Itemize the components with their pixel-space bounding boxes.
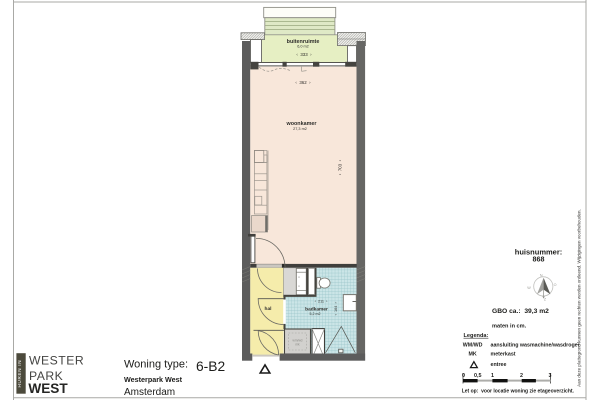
svg-text:Westerpark West: Westerpark West <box>124 375 183 384</box>
svg-text:‹ 362 ›: ‹ 362 › <box>295 80 311 85</box>
svg-text:‹ 164 ›: ‹ 164 › <box>334 302 338 316</box>
svg-text:6-B2: 6-B2 <box>196 359 225 374</box>
svg-text:HUREN IN: HUREN IN <box>17 360 22 388</box>
svg-text:MK: MK <box>469 352 477 358</box>
svg-text:mk: mk <box>295 343 300 347</box>
svg-text:GBO ca.: 39,3 m2: GBO ca.: 39,3 m2 <box>492 308 549 315</box>
svg-text:27,3 m2: 27,3 m2 <box>293 127 307 131</box>
svg-text:‹ 333 ›: ‹ 333 › <box>296 52 312 57</box>
svg-text:O: O <box>554 283 557 287</box>
svg-text:‹ 211 ›: ‹ 211 › <box>315 300 329 304</box>
svg-text:Legenda:: Legenda: <box>464 333 489 339</box>
svg-text:Woning type:: Woning type: <box>124 359 188 371</box>
svg-text:3: 3 <box>549 373 552 379</box>
svg-text:WESTER: WESTER <box>29 353 84 367</box>
svg-text:‹ 703 ›: ‹ 703 › <box>338 159 343 175</box>
svg-text:entree: entree <box>491 362 507 368</box>
svg-text:868: 868 <box>533 254 545 263</box>
svg-text:Amsterdam: Amsterdam <box>124 387 175 398</box>
svg-text:N: N <box>540 273 543 277</box>
svg-text:5,2 m2: 5,2 m2 <box>310 312 321 316</box>
svg-text:W: W <box>527 286 531 290</box>
svg-text:0: 0 <box>462 373 465 379</box>
svg-text:2: 2 <box>520 373 523 379</box>
svg-text:Let op: voor locatie woning z: Let op: voor locatie woning zie etageove… <box>462 389 575 395</box>
svg-text:meterkast: meterkast <box>491 352 516 358</box>
svg-text:maten in cm.: maten in cm. <box>492 324 527 330</box>
svg-text:0,5: 0,5 <box>474 373 482 379</box>
svg-text:aansluiting wasmachine/wasdrog: aansluiting wasmachine/wasdroger <box>491 343 580 349</box>
svg-text:1: 1 <box>491 373 494 379</box>
svg-text:Aan deze plattegrond kunnen ge: Aan deze plattegrond kunnen geen rechten… <box>577 209 582 387</box>
svg-text:hal: hal <box>265 306 272 312</box>
svg-text:6,0 m2: 6,0 m2 <box>297 45 309 49</box>
svg-text:WM/WD: WM/WD <box>463 343 483 349</box>
svg-text:WEST: WEST <box>28 381 68 396</box>
